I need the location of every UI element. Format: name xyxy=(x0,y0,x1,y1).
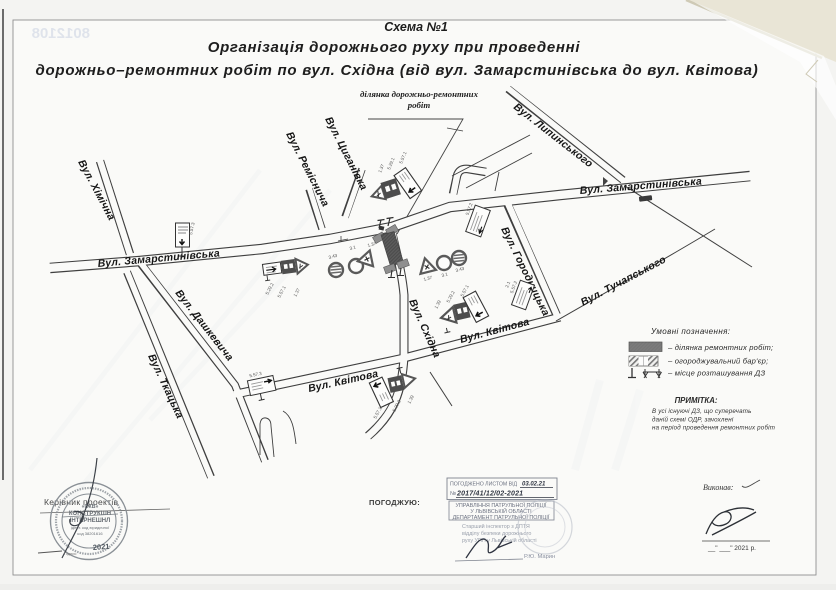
svg-text:03.02.21: 03.02.21 xyxy=(522,482,546,488)
svg-text:Виконав:: Виконав: xyxy=(703,483,734,492)
svg-text:Організація дорожнього руху пр: Організація дорожнього руху при проведен… xyxy=(208,39,581,56)
svg-text:ІНТЕРНЕШНЛ: ІНТЕРНЕШНЛ xyxy=(70,518,111,524)
svg-text:ПРИМІТКА:: ПРИМІТКА: xyxy=(675,396,718,405)
svg-text:– місце розташування ДЗ: – місце розташування ДЗ xyxy=(667,369,765,378)
svg-text:Старший інспектор з ДПТЯ: Старший інспектор з ДПТЯ xyxy=(462,523,530,530)
svg-text:відділу безпеки дорожнього: відділу безпеки дорожнього xyxy=(462,531,531,537)
svg-text:В усі існуючі ДЗ, що суперечат: В усі існуючі ДЗ, що суперечать xyxy=(652,408,752,415)
svg-text:ПОГОДЖУЮ:: ПОГОДЖУЮ: xyxy=(369,498,420,507)
svg-text:Умовні позначення:: Умовні позначення: xyxy=(650,327,730,336)
svg-text:ПОГОДЖЕНО ЛИСТОМ ВІД: ПОГОДЖЕНО ЛИСТОМ ВІД xyxy=(450,482,518,488)
svg-text:Р.Ю. Марин: Р.Ю. Марин xyxy=(524,554,555,560)
svg-text:__" ___" 2021 р.: __" ___" 2021 р. xyxy=(707,545,756,552)
svg-text:2017/41/12/02-2021: 2017/41/12/02-2021 xyxy=(456,491,523,498)
svg-text:– огороджувальний бар'єр;: – огороджувальний бар'єр; xyxy=(667,357,768,366)
svg-text:код 38201616: код 38201616 xyxy=(77,531,103,536)
svg-text:– ділянка ремонтних робіт;: – ділянка ремонтних робіт; xyxy=(667,343,773,352)
svg-text:руху УПП у Львівській області: руху УПП у Львівській області xyxy=(462,537,537,544)
svg-text:801​2108: 801​2108 xyxy=(32,25,90,42)
svg-text:ДЕПАРТАМЕНТ ПАТРУЛЬНОЇ ПОЛІЦІЇ: ДЕПАРТАМЕНТ ПАТРУЛЬНОЇ ПОЛІЦІЇ xyxy=(453,514,550,521)
svg-text:Підпис: Підпис xyxy=(64,551,77,556)
svg-text:У ЛЬВІВСЬКІЙ ОБЛАСТІ: У ЛЬВІВСЬКІЙ ОБЛАСТІ xyxy=(470,507,531,515)
svg-text:робіт: робіт xyxy=(407,100,431,110)
svg-text:даній схемі ОДР, зачохлені: даній схемі ОДР, зачохлені xyxy=(652,417,734,424)
svg-text:дорожньо–ремонтних робіт по ву: дорожньо–ремонтних робіт по вул. Східна … xyxy=(35,62,758,79)
svg-text:«ОКВ»: «ОКВ» xyxy=(82,504,99,510)
svg-text:на період проведення ремонтних: на період проведення ремонтних робіт xyxy=(652,425,775,432)
svg-text:Схема №1: Схема №1 xyxy=(384,20,448,34)
svg-text:ділянка дорожньо-ремонтних: ділянка дорожньо-ремонтних xyxy=(360,89,479,99)
svg-text:№: № xyxy=(450,491,456,497)
svg-text:2021: 2021 xyxy=(93,542,110,552)
